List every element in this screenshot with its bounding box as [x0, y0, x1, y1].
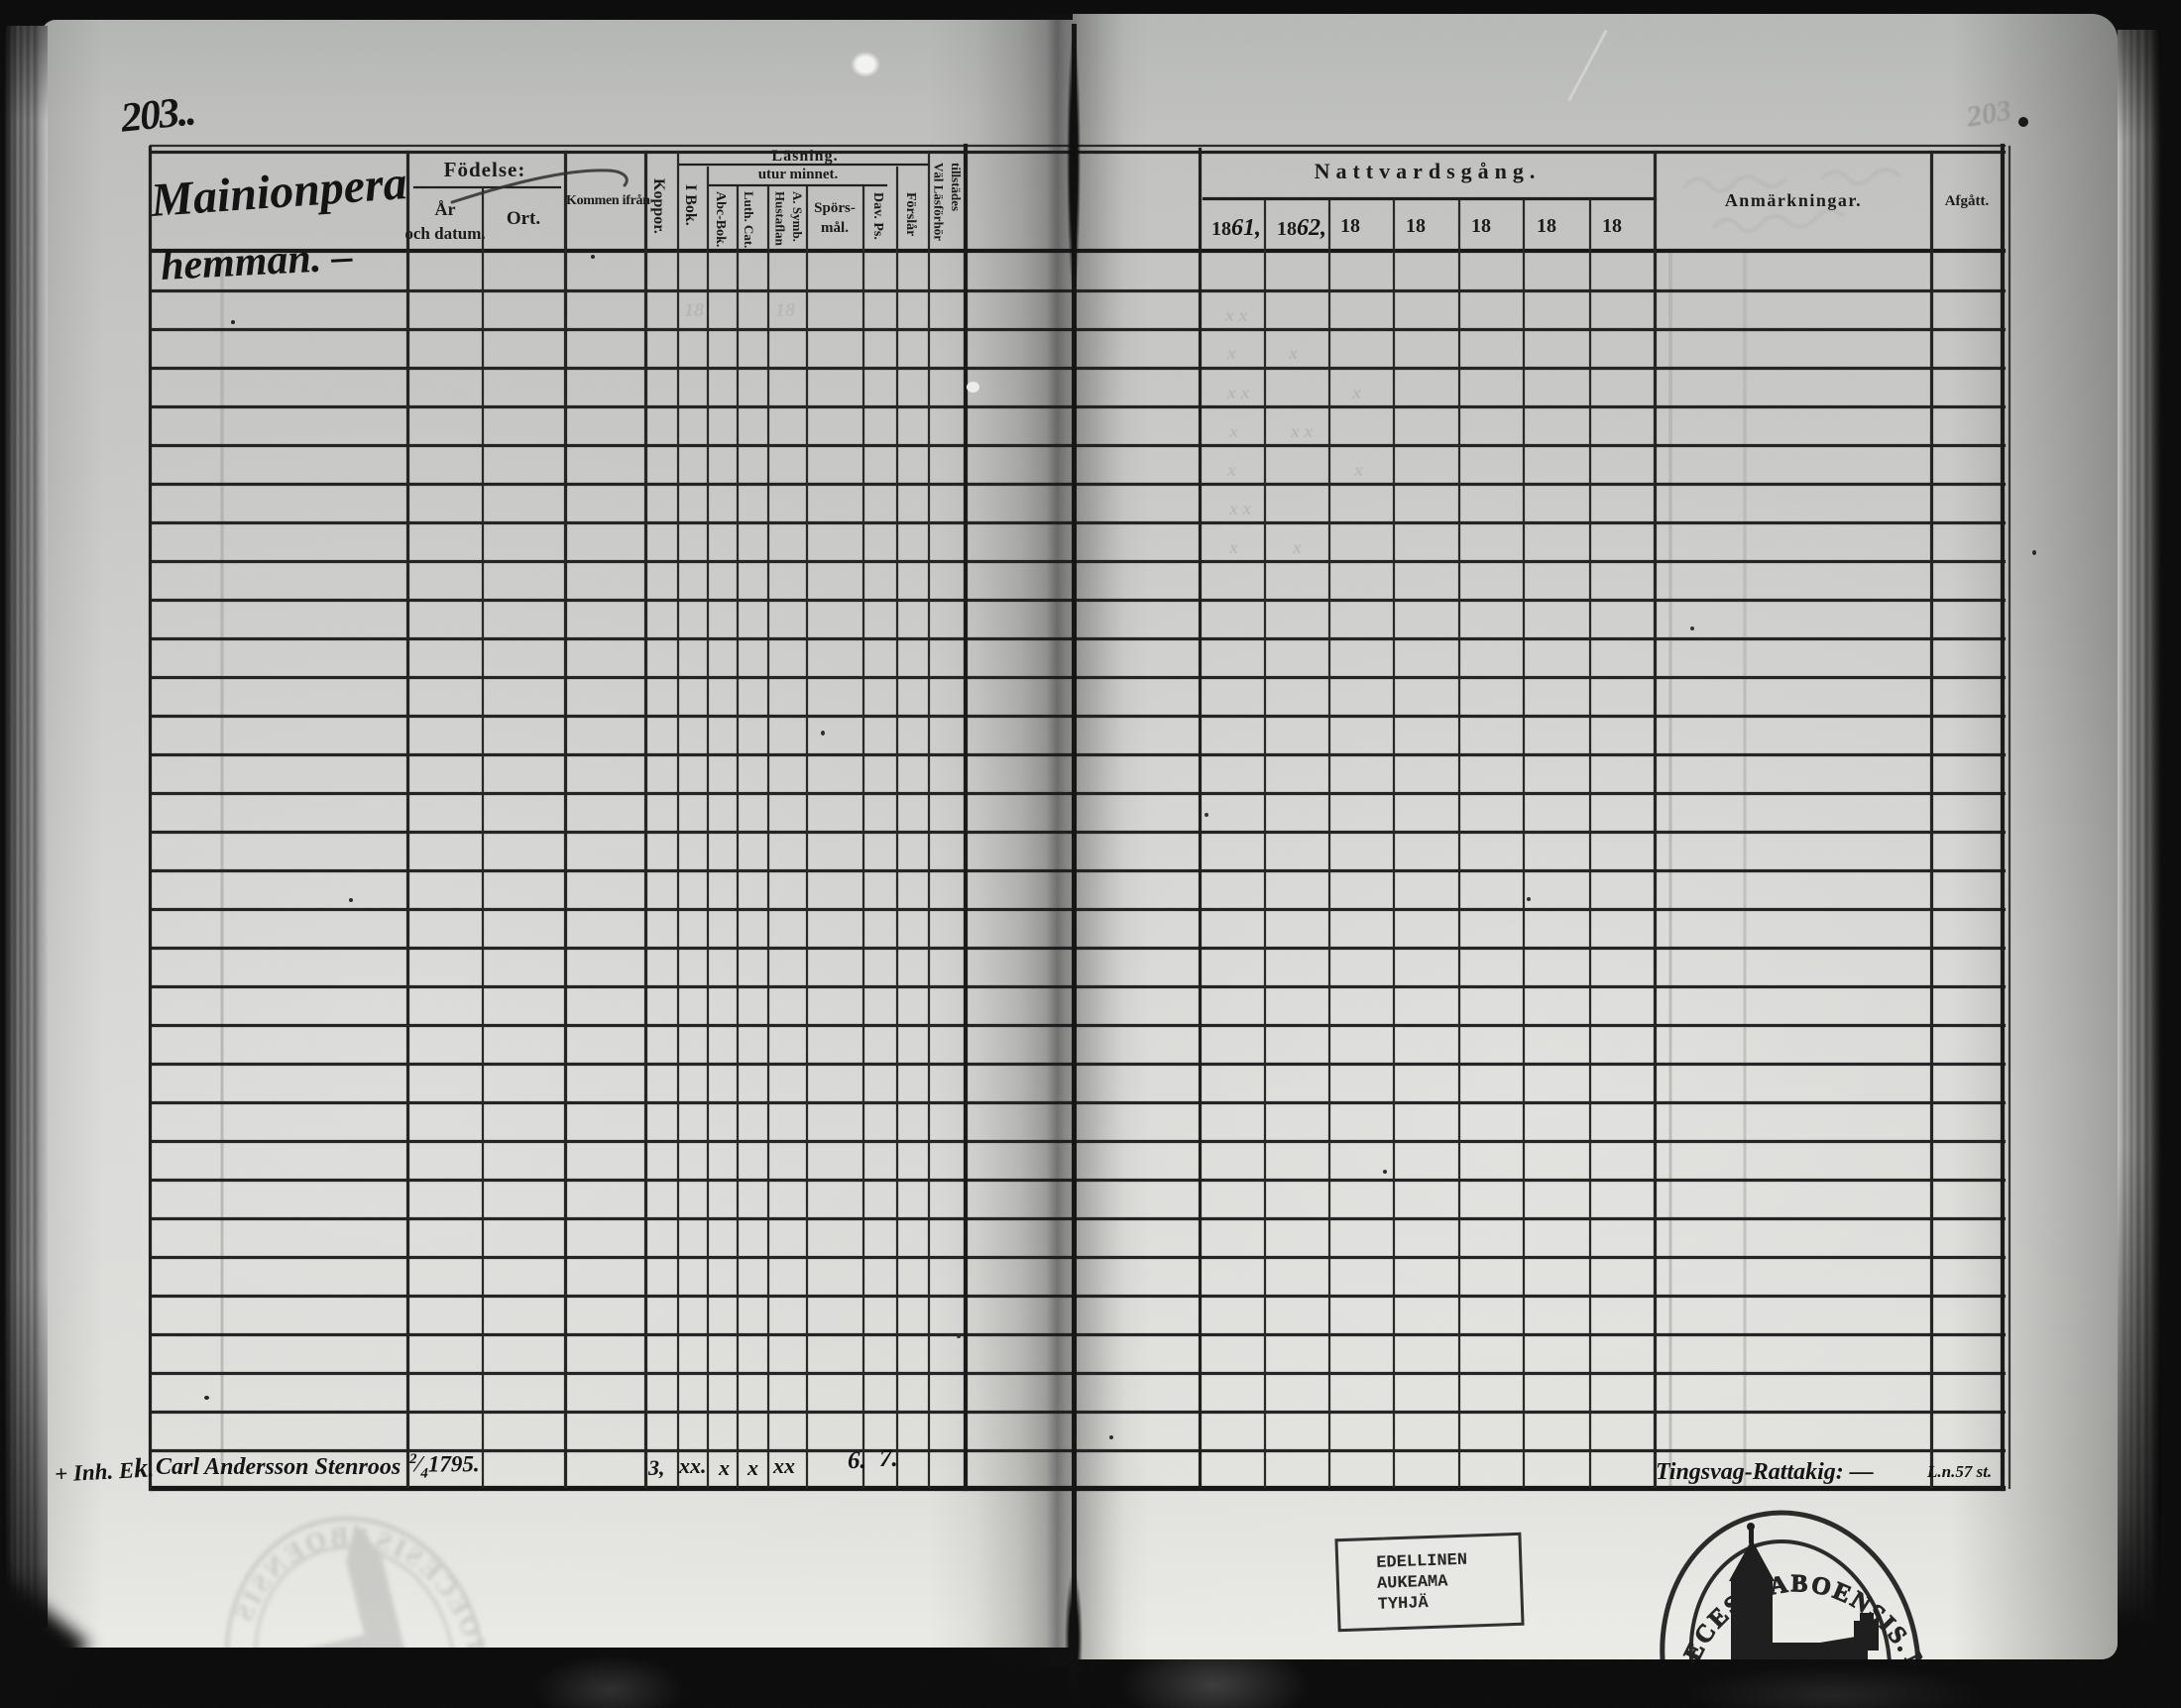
- svg-text:L. DIOECESISABOENSIS. M: L. DIOECESISABOENSIS. M: [1635, 1542, 1939, 1659]
